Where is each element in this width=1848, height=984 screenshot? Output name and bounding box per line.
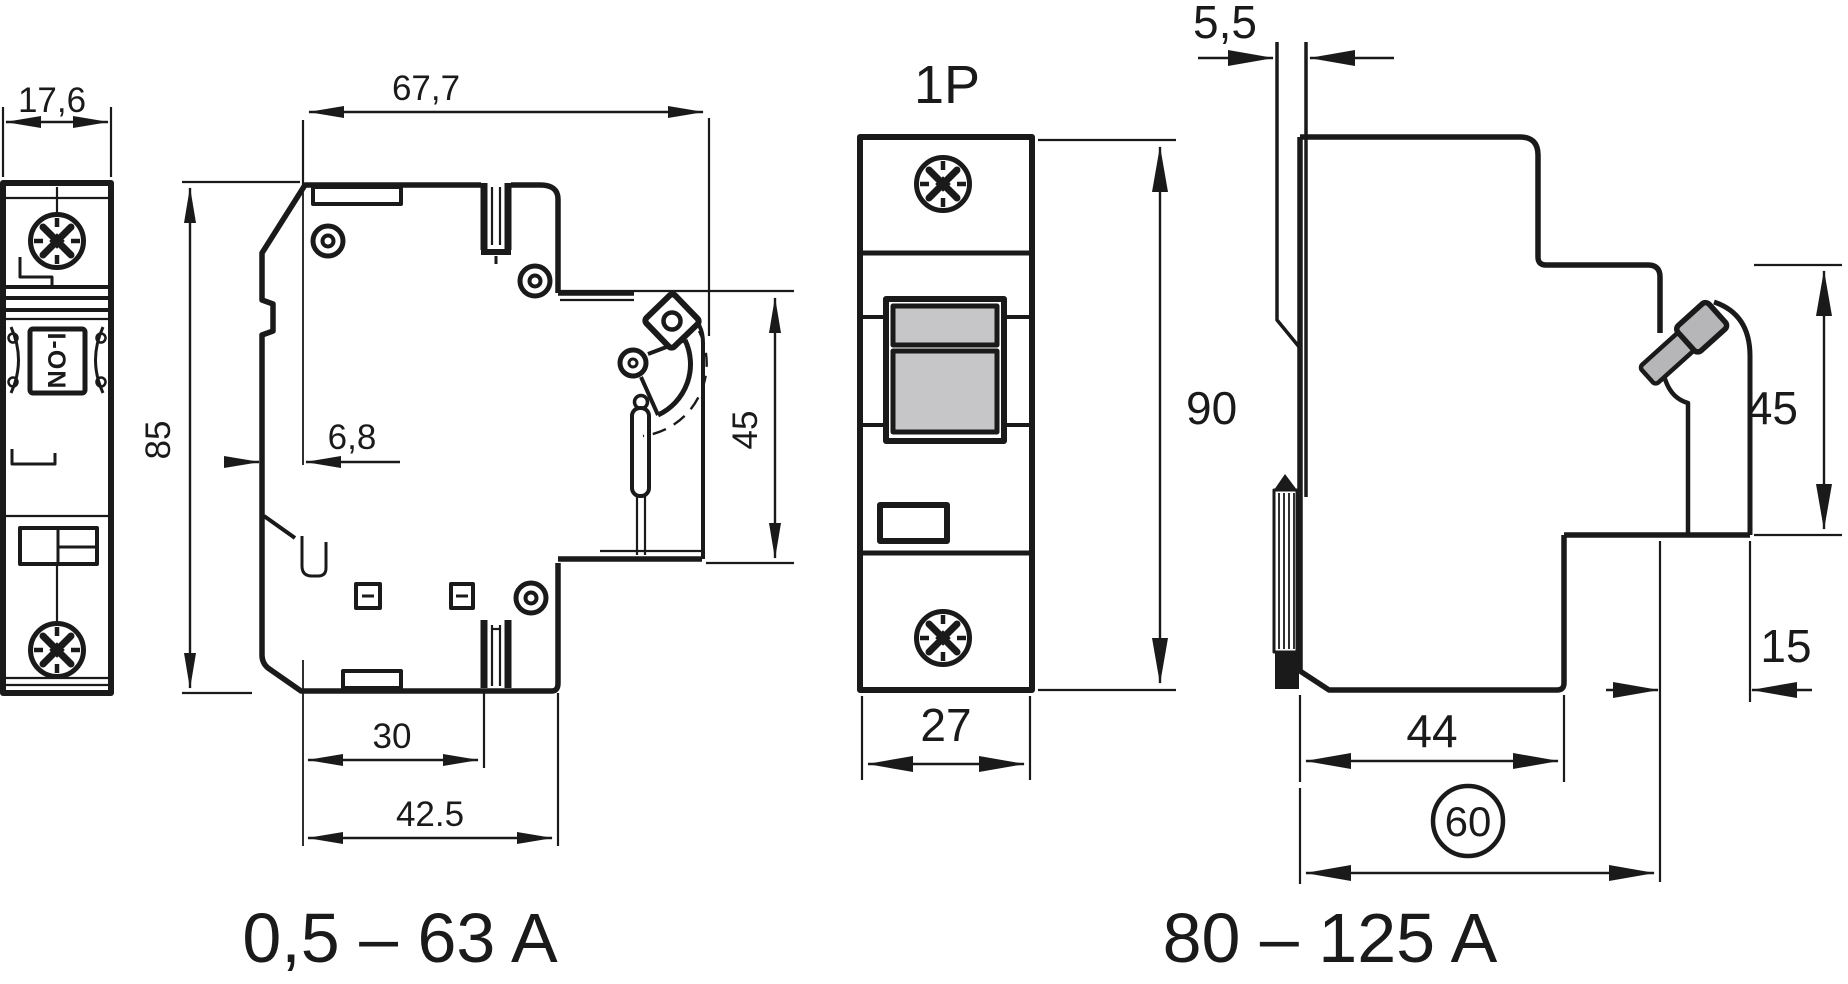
toggle-mechanism bbox=[620, 293, 707, 559]
dim-label: 90 bbox=[1186, 382, 1237, 434]
dim-total-depth-67-7: 67,7 bbox=[309, 69, 703, 112]
dim-label: 44 bbox=[1406, 705, 1457, 757]
dim-label: 67,7 bbox=[392, 69, 460, 108]
din-clip-icon bbox=[264, 516, 295, 538]
dim-label: 6,8 bbox=[328, 418, 377, 457]
dim-label: 60 bbox=[1445, 798, 1492, 845]
dim-label: 30 bbox=[373, 717, 412, 756]
caption-small-range: 0,5 – 63 A bbox=[242, 899, 558, 977]
dim-label: 15 bbox=[1760, 620, 1811, 672]
dim-height-85: 85 bbox=[139, 182, 300, 693]
label-1p: 1P bbox=[914, 55, 980, 115]
label-band-lines bbox=[6, 287, 108, 310]
dim-foot-offset-30: 30 bbox=[308, 693, 484, 768]
dim-recess-15: 15 bbox=[1606, 541, 1812, 882]
toggle-lever-icon bbox=[1636, 301, 1729, 389]
toggle-upper bbox=[893, 306, 997, 345]
dim-total-depth-60: 60 bbox=[1300, 786, 1654, 884]
terminal-slot-bottom bbox=[484, 620, 508, 688]
dim-height-90: 90 bbox=[1038, 140, 1237, 690]
dim-label: 45 bbox=[1747, 382, 1798, 434]
dimension-drawing-canvas: I-ON 17,6 bbox=[0, 0, 1848, 984]
dim-front-width-17-6: 17,6 bbox=[3, 81, 111, 177]
front-view-small-breaker: I-ON bbox=[3, 183, 111, 693]
terminal-slot-top bbox=[481, 183, 511, 264]
dim-label: 45 bbox=[726, 411, 765, 450]
label-window bbox=[880, 505, 947, 541]
front-view-1p-breaker bbox=[860, 137, 1032, 690]
din-clip-icon bbox=[1274, 474, 1299, 689]
dim-busbar-5-5: 5,5 bbox=[1193, 0, 1394, 58]
toggle-lever-icon bbox=[644, 293, 701, 350]
dim-label: 5,5 bbox=[1193, 0, 1257, 48]
toggle-lower bbox=[893, 351, 997, 432]
dim-label: 17,6 bbox=[18, 81, 86, 120]
dim-label: 42.5 bbox=[396, 795, 464, 834]
dim-label: 27 bbox=[920, 699, 971, 751]
dim-base-depth-42-5: 42.5 bbox=[308, 693, 558, 846]
technical-drawing: I-ON 17,6 bbox=[0, 0, 1848, 984]
dim-width-27: 27 bbox=[862, 696, 1030, 780]
dim-rail-offset-6-8: 6,8 bbox=[225, 418, 400, 462]
marking-i-on: I-ON bbox=[42, 333, 70, 390]
side-view-small-breaker bbox=[262, 118, 709, 846]
dim-label: 85 bbox=[139, 421, 178, 460]
caption-large-range: 80 – 125 A bbox=[1163, 899, 1498, 977]
dim-base-depth-44: 44 bbox=[1300, 695, 1564, 782]
dim-din-zone-45-large: 45 bbox=[1747, 265, 1842, 535]
side-view-large-breaker bbox=[1274, 42, 1750, 690]
